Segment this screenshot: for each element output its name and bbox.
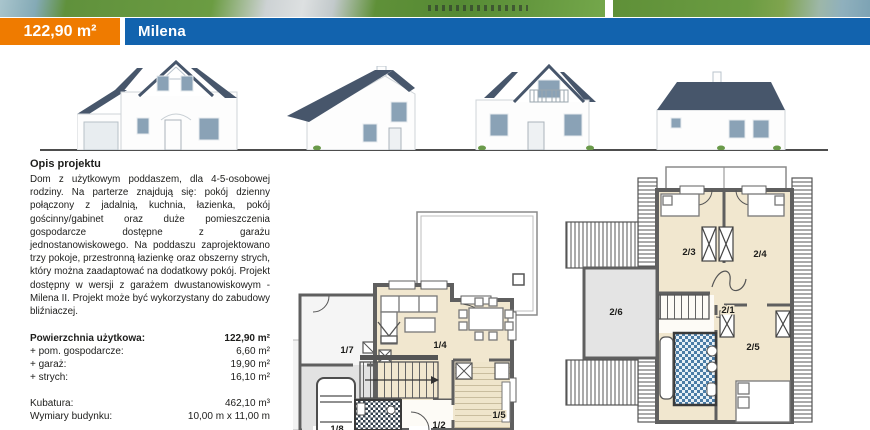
ground-floor-plan: 1/4 1/7 1/5 1/2 1/8 [293,210,545,430]
stairs [659,295,709,319]
window [199,118,219,140]
car [317,378,355,430]
spec-label: Powierzchnia użytkowa: [30,332,145,345]
elevation-rear-drawing [468,62,597,150]
spec-value: 16,10 m² [231,371,270,384]
spec-label: Wymiary budynku: [30,410,112,423]
front-door-opening [409,426,431,430]
elevation-front-drawing [77,60,240,150]
toilet [707,383,716,396]
description-heading: Opis projektu [30,158,270,170]
balcony-door [538,80,560,98]
room-label-storage: 2/6 [609,307,622,318]
window [729,120,745,138]
entry-door [165,120,181,150]
photo-strip-right [613,0,870,17]
room-label-bedroom-bottom: 2/5 [746,342,760,353]
project-description: Opis projektu Dom z użytkowym poddaszem,… [30,158,270,423]
spec-label: Kubatura: [30,397,73,410]
room-label-hall: 1/2 [432,420,445,430]
room-label-hall: 2/1 [721,305,735,316]
room-label-utility: 1/7 [340,345,353,356]
room-label-living: 1/4 [433,340,447,351]
room-label-kitchen: 1/5 [492,410,506,421]
bathtub [660,337,673,399]
sink [707,346,717,356]
roof-edge-right [792,178,812,422]
spec-table: Powierzchnia użytkowa: 122,90 m² + pom. … [30,332,270,423]
window [137,118,149,134]
spec-row: + garaż: 19,90 m² [30,358,270,371]
spec-label: + pom. gospodarcze: [30,345,124,358]
room-label-bedroom-left: 2/3 [682,247,695,258]
spec-row: + pom. gospodarcze: 6,60 m² [30,345,270,358]
stairs [360,355,439,398]
elevation-side-left-drawing [287,66,417,150]
window [391,102,407,122]
spec-label: + strych: [30,371,68,384]
spec-value: 6,60 m² [236,345,270,358]
brochure-page: 122,90 m² Milena [0,0,870,430]
window [490,114,508,136]
spec-value: 122,90 m² [224,332,270,345]
window [363,124,377,142]
spec-row: Kubatura: 462,10 m³ [30,397,270,410]
window [680,186,704,194]
description-body: Dom z użytkowym poddaszem, dla 4-5-osobo… [30,173,270,318]
project-name-bar: Milena [125,18,870,45]
balcony-top [566,222,638,268]
window [157,76,169,91]
side-door [389,128,401,150]
attic-floor-plan: 2/3 2/4 2/1 2/5 2/6 [562,165,830,430]
spec-value: 10,00 m x 11,00 m [188,410,270,423]
window [564,114,582,136]
room-label-bedroom-right: 2/4 [753,249,767,260]
window [742,186,766,194]
spec-label: + garaż: [30,358,66,371]
spec-row: + strych: 16,10 m² [30,371,270,384]
area-badge: 122,90 m² [0,18,120,45]
spec-value: 462,10 m³ [225,397,270,410]
terrace-door [528,122,544,150]
spec-row: Wymiary budynku: 10,00 m x 11,00 m [30,410,270,423]
balcony-bottom [566,360,638,405]
window [753,120,769,138]
photo-caption-sliver [428,5,528,11]
roof-plane [657,82,785,110]
window [181,76,193,91]
wc [355,400,401,430]
window [671,118,681,128]
bathroom [660,333,717,405]
garage-door [84,122,118,150]
sink [707,362,717,372]
spec-row: Powierzchnia użytkowa: 122,90 m² [30,332,270,345]
spec-value: 19,90 m² [231,358,270,371]
elevation-side-right-drawing [651,70,790,150]
room-label-garage: 1/8 [330,424,343,430]
